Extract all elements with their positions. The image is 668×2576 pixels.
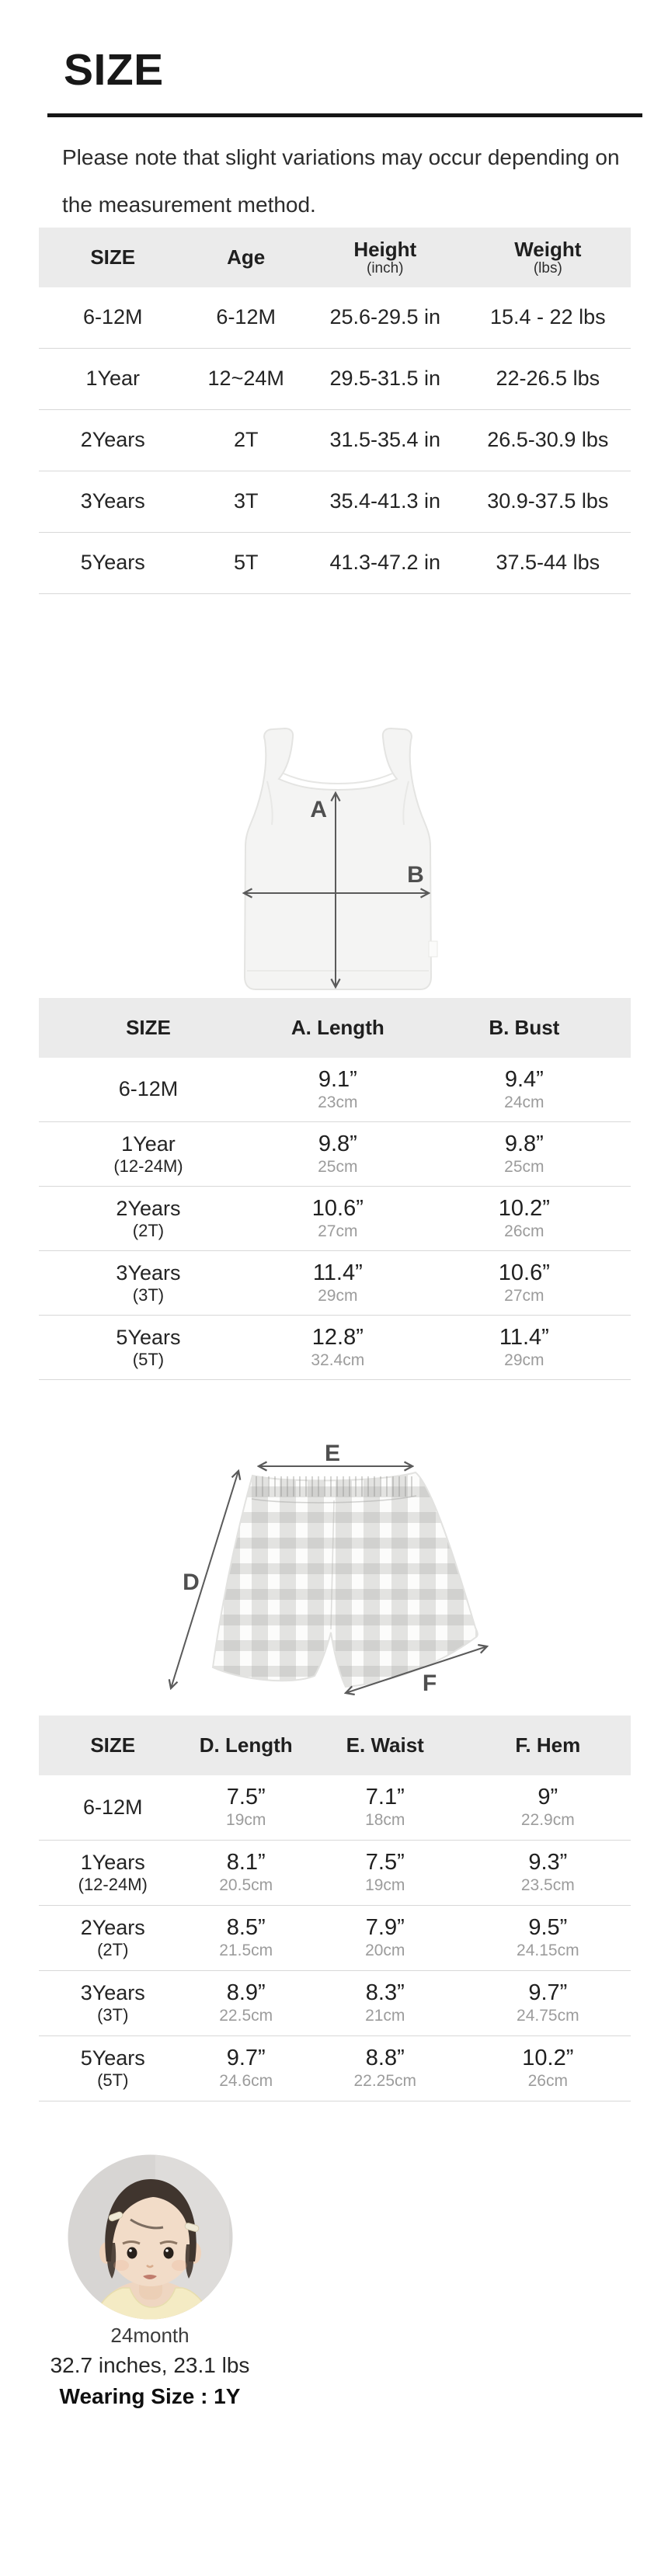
header-cell-size: SIZE <box>39 246 187 268</box>
table-row: 6-12M 9.1”23cm 9.4”24cm <box>39 1058 631 1122</box>
shorts-diagram: E D F <box>151 1437 517 1701</box>
table-row: 5Years(5T) 9.7”24.6cm 8.8”22.25cm 10.2”2… <box>39 2036 631 2101</box>
shorts-shape <box>213 1472 478 1687</box>
baby-cheek-right <box>172 2260 187 2271</box>
bottom-size-table: SIZE D. Length E. Waist F. Hem 6-12M 7.5… <box>39 1716 631 2101</box>
neck-trim-line <box>284 773 392 784</box>
table-row: 5Years(5T) 12.8”32.4cm 11.4”29cm <box>39 1316 631 1380</box>
general-size-table: SIZE Age Height(inch) Weight(lbs) 6-12M … <box>39 228 631 594</box>
table-row: 3Years 3T 35.4-41.3 in 30.9-37.5 lbs <box>39 471 631 533</box>
header-cell-weight: Weight(lbs) <box>465 238 631 277</box>
table-row: 2Years(2T) 8.5”21.5cm 7.9”20cm 9.5”24.15… <box>39 1906 631 1971</box>
baby-eye-left <box>127 2247 137 2259</box>
baby-cheek-left <box>113 2260 129 2271</box>
size-guide-page: SIZE Please note that slight variations … <box>0 0 668 2576</box>
tank-top-shape <box>245 728 431 989</box>
table-row: 3Years(3T) 11.4”29cm 10.6”27cm <box>39 1251 631 1316</box>
measure-label-d: D <box>183 1570 200 1595</box>
title-divider <box>47 113 642 117</box>
measurement-note: Please note that slight variations may o… <box>62 134 620 228</box>
model-age: 24month <box>30 2320 270 2350</box>
header-cell-age: Age <box>187 246 305 268</box>
table-row: 2Years(2T) 10.6”27cm 10.2”26cm <box>39 1187 631 1251</box>
table-row: 1Year 12~24M 29.5-31.5 in 22-26.5 lbs <box>39 349 631 410</box>
header-cell-length: D. Length <box>187 1734 305 1756</box>
table-row: 3Years(3T) 8.9”22.5cm 8.3”21cm 9.7”24.75… <box>39 1971 631 2036</box>
table-row: 2Years 2T 31.5-35.4 in 26.5-30.9 lbs <box>39 410 631 471</box>
tank-top-diagram: A B <box>198 714 470 1002</box>
header-cell-bust: B. Bust <box>418 1017 631 1038</box>
header-cell-length: A. Length <box>258 1017 418 1038</box>
general-size-table-header: SIZE Age Height(inch) Weight(lbs) <box>39 228 631 287</box>
header-cell-waist: E. Waist <box>305 1734 465 1756</box>
measure-label-b: B <box>407 862 424 888</box>
top-size-table-header: SIZE A. Length B. Bust <box>39 998 631 1058</box>
bottom-size-table-header: SIZE D. Length E. Waist F. Hem <box>39 1716 631 1775</box>
model-wearing-size: Wearing Size : 1Y <box>30 2381 270 2412</box>
model-photo <box>66 2153 235 2321</box>
header-cell-size: SIZE <box>39 1017 258 1038</box>
waistband-gathers <box>254 1476 415 1497</box>
table-row: 5Years 5T 41.3-47.2 in 37.5-44 lbs <box>39 533 631 594</box>
measure-label-e: E <box>325 1441 340 1466</box>
model-info: 24month 32.7 inches, 23.1 lbs Wearing Si… <box>30 2320 270 2412</box>
measure-label-a: A <box>310 797 327 822</box>
table-row: 1Years(12-24M) 8.1”20.5cm 7.5”19cm 9.3”2… <box>39 1841 631 1906</box>
header-cell-height: Height(inch) <box>305 238 465 277</box>
header-cell-hem: F. Hem <box>465 1734 631 1756</box>
baby-eye-right <box>164 2247 174 2259</box>
table-row: 6-12M 7.5”19cm 7.1”18cm 9”22.9cm <box>39 1775 631 1841</box>
page-title: SIZE <box>64 48 164 92</box>
top-size-table: SIZE A. Length B. Bust 6-12M 9.1”23cm 9.… <box>39 998 631 1380</box>
table-row: 6-12M 6-12M 25.6-29.5 in 15.4 - 22 lbs <box>39 287 631 349</box>
header-cell-size: SIZE <box>39 1734 187 1756</box>
measurement-note-line1: Please note that slight variations may o… <box>62 134 620 181</box>
model-stats: 32.7 inches, 23.1 lbs <box>30 2350 270 2381</box>
side-tag <box>429 941 437 957</box>
measurement-note-line2: the measurement method. <box>62 181 620 228</box>
measure-label-f: F <box>423 1670 437 1696</box>
table-row: 1Year(12-24M) 9.8”25cm 9.8”25cm <box>39 1122 631 1187</box>
